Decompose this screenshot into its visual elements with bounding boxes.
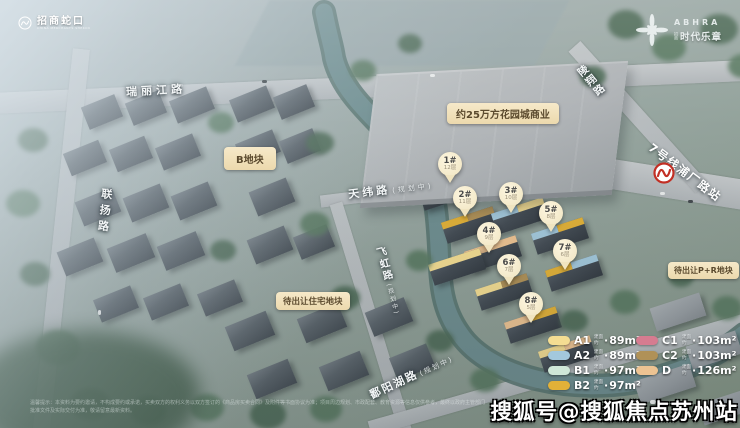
legend-item: A2建面约89m²	[548, 349, 632, 362]
legend-unit-code: A1	[574, 334, 594, 347]
prefix-line: 约	[594, 341, 604, 346]
pin-head: 4#9层	[477, 222, 501, 246]
legend-column-2: C1建面约103m² C2建面约103m² D建面约126m²	[636, 334, 720, 392]
prefix-line: 约	[682, 356, 692, 361]
pin-tail	[460, 209, 470, 217]
building-number: 7#	[558, 244, 571, 253]
tree	[406, 250, 432, 271]
pin-tail	[504, 277, 514, 285]
legend-area-prefix: 建面约	[594, 380, 604, 390]
legend-unit-code: B1	[574, 364, 594, 377]
metro-logo-icon	[653, 162, 675, 184]
dot	[98, 310, 101, 315]
tree	[18, 128, 48, 152]
watermark: 搜狐号@搜狐焦点苏州站	[490, 395, 738, 426]
legend-unit-code: B2	[574, 379, 594, 392]
pin-tail	[445, 175, 455, 183]
tree	[712, 296, 740, 320]
legend-area-prefix: 建面约	[594, 335, 604, 345]
building-floors: 12层	[444, 166, 457, 172]
tree	[20, 262, 50, 286]
project-logo-text: ABHRA 招商 时代乐章	[674, 18, 722, 43]
plot-b-label: B地块	[224, 147, 276, 170]
pin-tail	[506, 205, 516, 213]
building-pin-8: 8#5层	[519, 292, 543, 323]
legend-area-prefix: 建面约	[682, 335, 692, 345]
building-number: 1#	[443, 157, 456, 166]
dot	[660, 192, 665, 195]
building-pin-4: 4#9层	[477, 222, 501, 253]
cm-logo-subtitle: CHINA MERCHANTS SHEKOU	[37, 27, 91, 30]
dot	[262, 80, 267, 83]
flower-icon	[636, 14, 668, 46]
building-pin-3: 3#10层	[499, 182, 523, 213]
tree	[6, 190, 40, 217]
pin-head: 5#8层	[539, 201, 563, 225]
building-floors: 6层	[561, 253, 570, 259]
pin-head: 1#12层	[438, 152, 462, 176]
legend-area-prefix: 建面约	[594, 350, 604, 360]
building-floors: 8层	[547, 215, 556, 221]
project-logo-cn-row: 招商 时代乐章	[674, 29, 722, 43]
cm-circle-icon	[18, 16, 32, 30]
road-label-ruilijiang: 瑞丽江路	[126, 80, 187, 99]
pin-head: 3#10层	[499, 182, 523, 206]
legend-color-swatch	[636, 336, 658, 345]
building-floors: 5层	[527, 306, 536, 312]
legend-area-prefix: 建面约	[682, 350, 692, 360]
pin-tail	[484, 245, 494, 253]
legend-area-prefix: 建面约	[682, 365, 692, 375]
prefix-line: 约	[594, 371, 604, 376]
legend-item: B1建面约97m²	[548, 364, 632, 377]
legend-color-swatch	[636, 351, 658, 360]
tree	[208, 112, 234, 133]
building-pin-5: 5#8层	[539, 201, 563, 232]
building-pin-1: 1#12层	[438, 152, 462, 183]
legend-color-swatch	[548, 366, 570, 375]
tree	[470, 368, 500, 392]
project-logo-prefix: 招商	[674, 32, 678, 40]
pin-head: 7#6层	[553, 239, 577, 263]
cm-logo-text: 招商蛇口 CHINA MERCHANTS SHEKOU	[37, 16, 91, 30]
pin-head: 2#11层	[453, 186, 477, 210]
legend-item: B2建面约97m²	[548, 379, 632, 392]
building-number: 8#	[524, 297, 537, 306]
tree	[350, 60, 376, 81]
prefix-line: 约	[682, 341, 692, 346]
building-floors: 9层	[485, 236, 494, 242]
legend-color-swatch	[548, 351, 570, 360]
project-logo-title: 时代乐章	[680, 29, 722, 43]
tree	[398, 34, 422, 53]
building-number: 2#	[458, 191, 471, 200]
road-name: 瑞丽江路	[126, 82, 187, 98]
tree	[210, 240, 236, 261]
legend-item: D建面约126m²	[636, 364, 720, 377]
legend-color-swatch	[548, 336, 570, 345]
prefix-line: 约	[594, 386, 604, 391]
prefix-line: 约	[682, 371, 692, 376]
pin-tail	[546, 224, 556, 232]
disclaimer-text: 温馨提示：本资料为要约邀请，不构成要约或承诺，买卖双方的权利义务以双方签订的《商…	[30, 399, 485, 415]
pin-head: 8#5层	[519, 292, 543, 316]
building-number: 5#	[544, 206, 557, 215]
legend-area-prefix: 建面约	[594, 365, 604, 375]
pin-tail	[560, 262, 570, 270]
building-number: 4#	[482, 227, 495, 236]
legend-column-1: A1建面约89m² A2建面约89m² B1建面约97m² B2建面约97m²	[548, 334, 632, 392]
commercial-plot-label: 约25万方花园城商业	[447, 103, 559, 124]
pin-tail	[526, 315, 536, 323]
project-logo: ABHRA 招商 时代乐章	[636, 14, 722, 46]
unit-type-legend: A1建面约89m² A2建面约89m² B1建面约97m² B2建面约97m² …	[548, 334, 720, 392]
legend-item: C2建面约103m²	[636, 349, 720, 362]
pending-pr-label: 待出让P+R地块	[668, 262, 739, 279]
building-pin-7: 7#6层	[553, 239, 577, 270]
project-logo-en: ABHRA	[674, 18, 722, 27]
building-number: 3#	[504, 187, 517, 196]
building-pin-6: 6#7层	[497, 254, 521, 285]
legend-unit-code: C1	[662, 334, 682, 347]
legend-color-swatch	[636, 366, 658, 375]
legend-area-value: 103m²	[692, 349, 736, 362]
building-pin-2: 2#11层	[453, 186, 477, 217]
legend-area-value: 126m²	[692, 364, 736, 377]
legend-unit-code: D	[662, 364, 682, 377]
pin-head: 6#7层	[497, 254, 521, 278]
dot	[430, 74, 435, 77]
legend-item: A1建面约89m²	[548, 334, 632, 347]
building-number: 6#	[502, 259, 515, 268]
prefix-line: 约	[594, 356, 604, 361]
building-floors: 10层	[505, 196, 518, 202]
legend-unit-code: C2	[662, 349, 682, 362]
legend-color-swatch	[548, 381, 570, 390]
legend-unit-code: A2	[574, 349, 594, 362]
dot	[688, 200, 693, 203]
tree	[610, 290, 640, 314]
pending-residential-label: 待出让住宅地块	[276, 292, 350, 310]
aerial-site-plan: 瑞丽江路 联扬路 天纬路(规划中) 飞虹路(规划中) 鄱阳湖路(规划中) 陵翔路…	[0, 0, 740, 428]
building-floors: 11层	[459, 200, 472, 206]
legend-item: C1建面约103m²	[636, 334, 720, 347]
china-merchants-logo: 招商蛇口 CHINA MERCHANTS SHEKOU	[18, 16, 91, 30]
building-floors: 7层	[505, 268, 514, 274]
legend-area-value: 103m²	[692, 334, 736, 347]
tree	[300, 212, 330, 236]
